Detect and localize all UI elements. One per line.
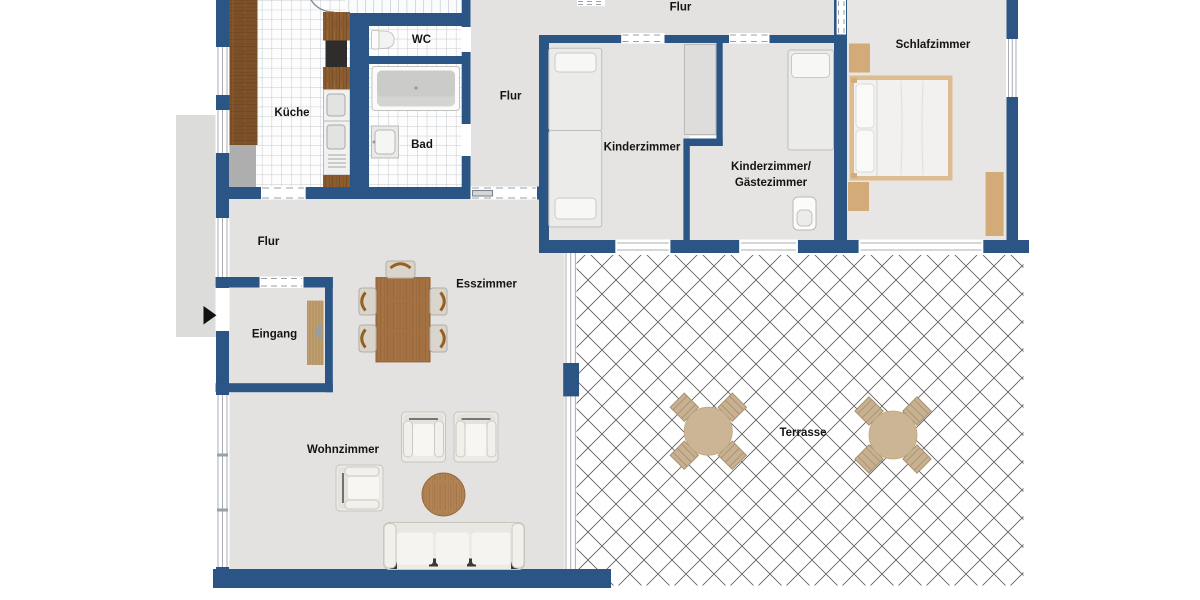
- svg-text:Esszimmer: Esszimmer: [456, 279, 517, 291]
- svg-text:Flur: Flur: [258, 236, 280, 248]
- svg-text:Kinderzimmer: Kinderzimmer: [604, 142, 681, 154]
- svg-text:Küche: Küche: [274, 107, 309, 119]
- svg-text:Eingang: Eingang: [252, 329, 297, 341]
- svg-text:Bad: Bad: [411, 139, 433, 151]
- svg-text:Terrasse: Terrasse: [779, 427, 826, 439]
- svg-text:Flur: Flur: [670, 2, 692, 14]
- svg-text:Wohnzimmer: Wohnzimmer: [307, 444, 380, 456]
- svg-text:Gästezimmer: Gästezimmer: [735, 177, 808, 189]
- svg-text:WC: WC: [412, 34, 431, 46]
- svg-text:Kinderzimmer/: Kinderzimmer/: [731, 161, 812, 173]
- svg-text:Schlafzimmer: Schlafzimmer: [896, 39, 971, 51]
- svg-text:Flur: Flur: [500, 91, 522, 103]
